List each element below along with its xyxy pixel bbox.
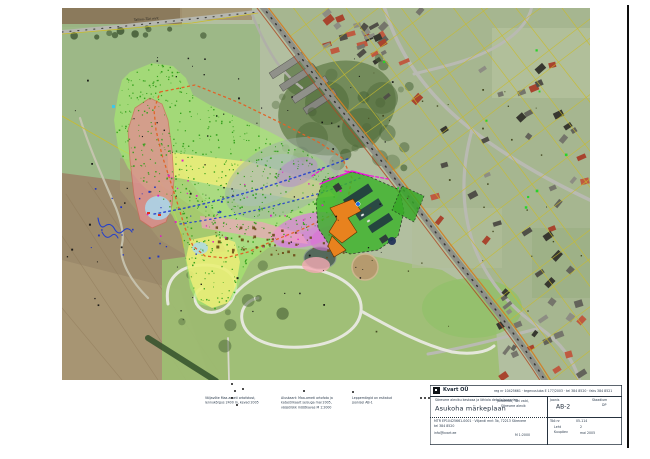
survey-dot <box>231 397 233 399</box>
date-label: Kuupäev <box>554 430 568 435</box>
stage-label: Staadium <box>592 398 607 403</box>
zone-pink <box>302 257 330 273</box>
cyan-marker <box>112 105 115 108</box>
titleblock-divider <box>547 396 548 445</box>
titleblock-border-right <box>621 385 622 445</box>
survey-dot <box>236 404 238 406</box>
survey-dot <box>303 390 305 392</box>
date-value: mai 2005 <box>580 431 595 436</box>
survey-dot <box>231 383 233 385</box>
company-reg-line: reg nr 10425661 · tegevusluba E 177/2003… <box>494 389 612 394</box>
job-number-value: 05-114 <box>576 419 587 424</box>
title-block: Kvart OÜ reg nr 10425661 · tegevusluba E… <box>430 385 622 445</box>
titleblock-border-top <box>430 385 622 386</box>
stage-value: DP <box>602 403 606 408</box>
sheet-frame-line <box>627 5 629 448</box>
location-line-1: Järvamaa, Türi vald, <box>497 399 529 404</box>
company-logo <box>433 387 440 394</box>
survey-dot <box>242 388 244 390</box>
drawing-sheet: Tallinn–Türi mnt Väljavõte Maa-ameti ort… <box>0 0 650 459</box>
company-email: info@kvart.ee <box>434 431 456 436</box>
zone-lightblue <box>145 196 171 220</box>
survey-dot <box>424 397 426 399</box>
location-line-2: Särevere alevik <box>501 404 526 409</box>
drawing-label: Joonis <box>550 398 559 403</box>
sheet-title: Asukoha märkeplaan <box>435 405 506 413</box>
survey-dot <box>428 397 430 399</box>
dev-navy-blob <box>388 237 396 245</box>
titleblock-rule-2a <box>430 417 547 418</box>
titleblock-rule-2b <box>547 417 622 418</box>
sheet-number-label: Leht <box>554 425 561 430</box>
job-number-label: Töö nr <box>550 419 560 424</box>
red-mark <box>158 214 161 216</box>
survey-dot <box>234 390 236 392</box>
sheet-number-value: 2 <box>580 425 582 430</box>
scale-text: M 1:2000 <box>515 433 530 438</box>
survey-dot <box>352 391 354 393</box>
aerial-map-canvas: Tallinn–Türi mnt <box>62 8 590 380</box>
company-address: MTR EP10425661-0001 · Viljandi mnt 3b, 7… <box>434 419 526 424</box>
company-name: Kvart OÜ <box>443 387 468 393</box>
company-phone: tel 384 8520 <box>434 424 454 429</box>
map-note: Leppemärgid on esitatud joonisel AB-1 <box>352 396 392 405</box>
map-note: Aluskaart: Maa-ameti ortofoto ja katastr… <box>281 396 333 410</box>
titleblock-border-left <box>430 385 431 445</box>
drawing-number: AB-2 <box>556 403 570 410</box>
titleblock-border-bottom <box>430 444 622 445</box>
survey-dot <box>420 397 422 399</box>
red-mark <box>147 212 150 214</box>
dev-blue-marker <box>356 202 360 206</box>
